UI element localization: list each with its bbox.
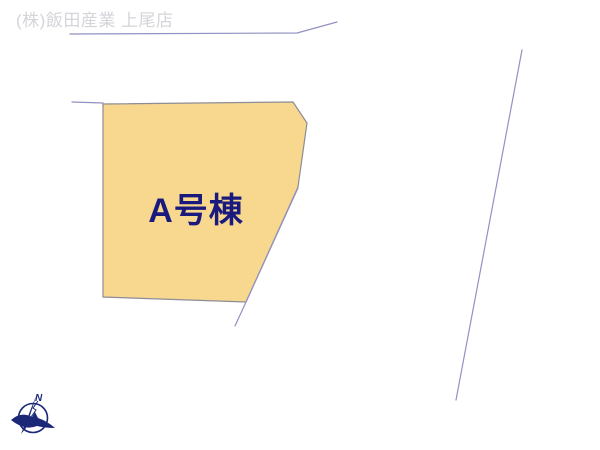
compass-north-letter: N	[35, 393, 43, 404]
road-boundary-right-line	[456, 50, 522, 400]
site-plan-drawing: N	[0, 0, 600, 450]
boundary-left-segment	[72, 102, 103, 103]
road-boundary-top-line	[70, 22, 337, 34]
plot-a-label: A号棟	[120, 183, 272, 232]
compass-north-icon: N	[11, 393, 55, 434]
site-plan-canvas: (株)飯田産業 上尾店 N A号棟	[0, 0, 600, 450]
